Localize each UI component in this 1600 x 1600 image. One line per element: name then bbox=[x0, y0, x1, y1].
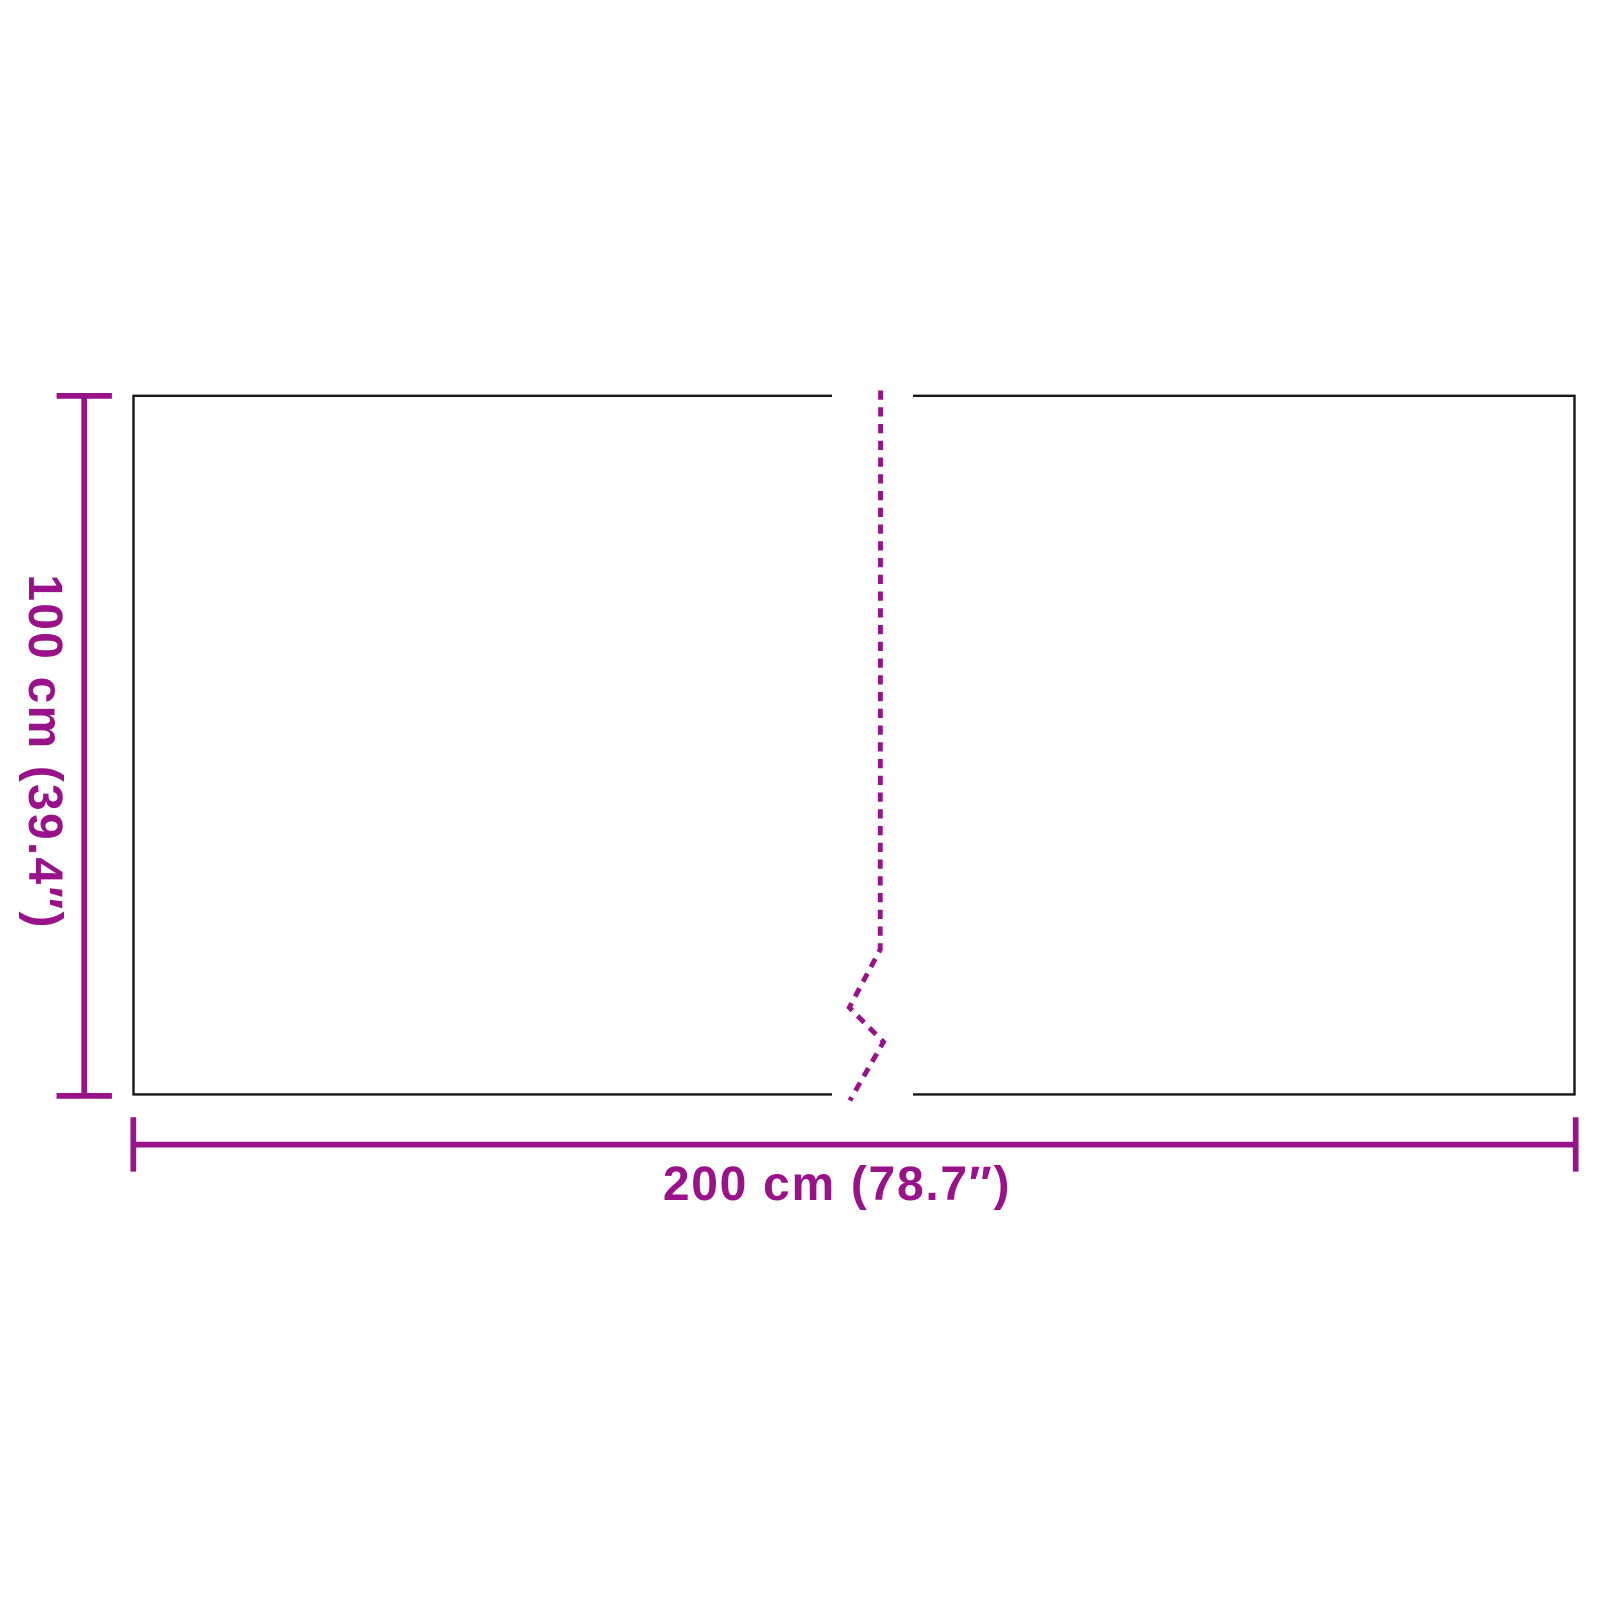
svg-text:200 cm (78.7″): 200 cm (78.7″) bbox=[663, 1158, 1011, 1211]
svg-text:100 cm (39.4″): 100 cm (39.4″) bbox=[18, 574, 71, 929]
